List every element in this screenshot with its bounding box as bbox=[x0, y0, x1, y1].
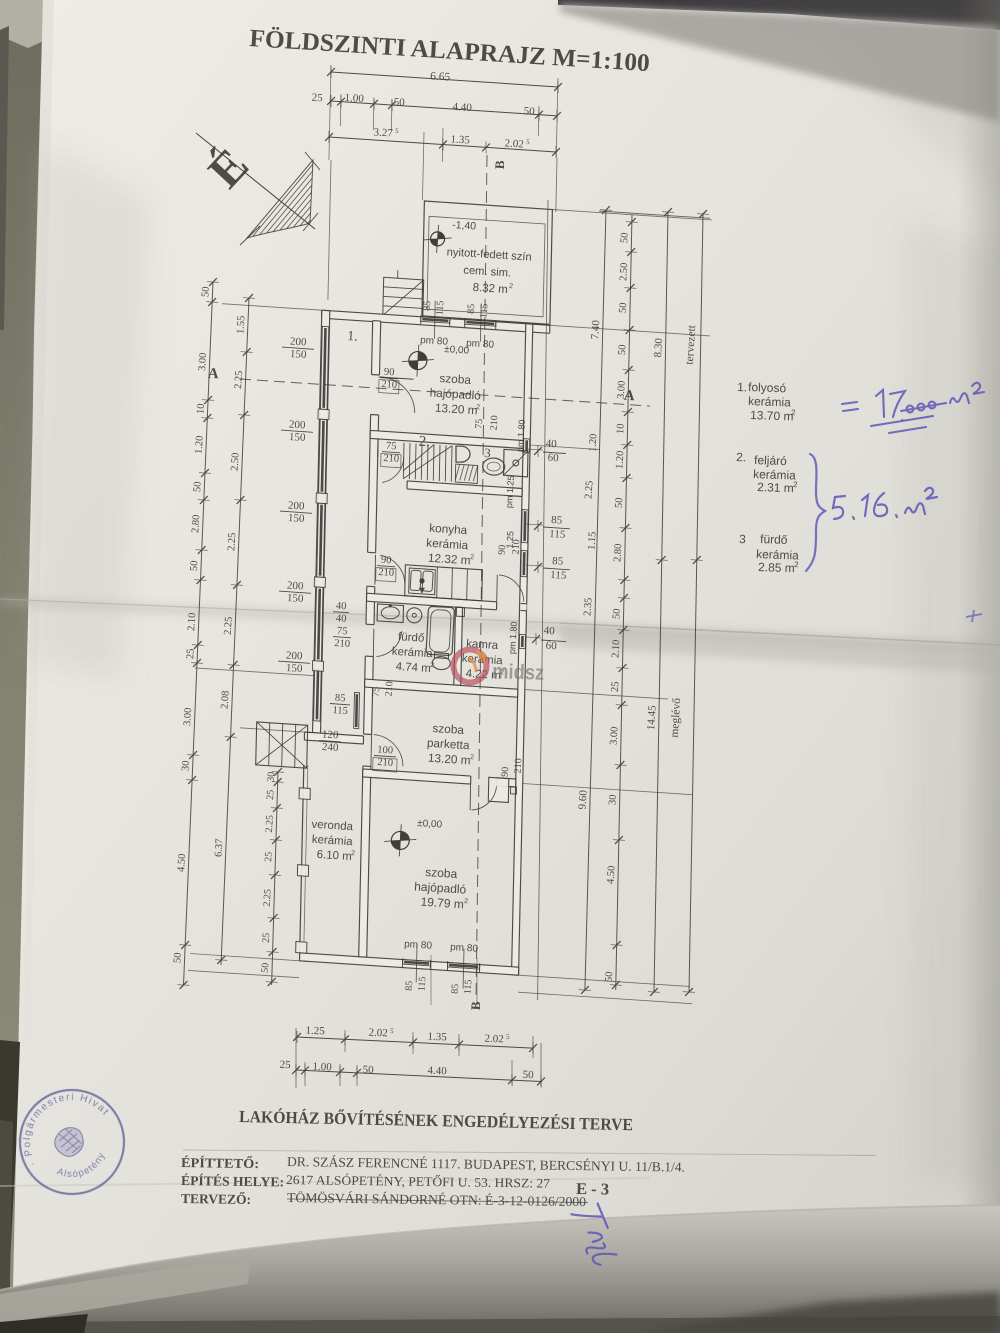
svg-text:75: 75 bbox=[474, 419, 486, 430]
svg-text:1.00: 1.00 bbox=[344, 92, 364, 105]
svg-text:90: 90 bbox=[384, 367, 395, 379]
svg-text:40: 40 bbox=[336, 601, 347, 613]
svg-text:9.60: 9.60 bbox=[577, 789, 590, 809]
svg-text:210: 210 bbox=[334, 638, 350, 650]
svg-text:konyha: konyha bbox=[429, 521, 468, 537]
svg-text:85: 85 bbox=[552, 555, 564, 568]
svg-text:85: 85 bbox=[551, 514, 563, 527]
svg-text:115: 115 bbox=[479, 303, 491, 318]
svg-text:2.25: 2.25 bbox=[264, 815, 276, 833]
svg-text:1.00: 1.00 bbox=[312, 1061, 332, 1074]
svg-text:2.: 2. bbox=[736, 450, 746, 464]
svg-text:szoba: szoba bbox=[439, 371, 472, 387]
svg-text:85: 85 bbox=[450, 984, 462, 995]
svg-text:150: 150 bbox=[286, 662, 304, 675]
svg-text:2: 2 bbox=[464, 898, 468, 905]
svg-text:200: 200 bbox=[287, 579, 305, 592]
svg-text:pm 80: pm 80 bbox=[404, 939, 433, 952]
svg-text:200: 200 bbox=[289, 418, 307, 431]
svg-text:1.: 1. bbox=[737, 380, 747, 394]
svg-text:1.55: 1.55 bbox=[235, 315, 247, 334]
svg-text:115: 115 bbox=[332, 705, 348, 717]
svg-text:6.37: 6.37 bbox=[213, 838, 225, 857]
svg-text:fürdő: fürdő bbox=[760, 532, 788, 547]
svg-text:40: 40 bbox=[336, 613, 347, 625]
svg-text:2.80: 2.80 bbox=[612, 543, 624, 562]
svg-text:6.10 m: 6.10 m bbox=[316, 849, 352, 863]
svg-text:50: 50 bbox=[393, 96, 405, 109]
svg-text:100: 100 bbox=[377, 745, 393, 757]
svg-text:±0,00: ±0,00 bbox=[444, 344, 470, 357]
svg-text:2.08: 2.08 bbox=[220, 690, 232, 709]
svg-text:85: 85 bbox=[335, 693, 346, 705]
svg-text:E - 3: E - 3 bbox=[576, 1179, 609, 1199]
svg-text:kerámia: kerámia bbox=[426, 536, 469, 553]
svg-text:210: 210 bbox=[384, 681, 396, 697]
svg-text:85: 85 bbox=[422, 301, 434, 312]
svg-text:2.25: 2.25 bbox=[233, 370, 245, 389]
svg-text:115: 115 bbox=[550, 569, 567, 582]
svg-text:2.31 m: 2.31 m bbox=[757, 480, 794, 495]
svg-text:115: 115 bbox=[417, 976, 429, 991]
svg-text:50: 50 bbox=[172, 952, 184, 963]
svg-text:200: 200 bbox=[286, 649, 304, 662]
svg-text:6.65: 6.65 bbox=[430, 70, 451, 83]
svg-text:2.02: 2.02 bbox=[504, 137, 524, 150]
svg-text:85: 85 bbox=[466, 304, 478, 315]
svg-text:3: 3 bbox=[739, 532, 746, 546]
svg-text:50: 50 bbox=[189, 560, 201, 571]
svg-text:25: 25 bbox=[263, 852, 275, 863]
svg-text:1.15: 1.15 bbox=[586, 531, 598, 550]
svg-text:1.35: 1.35 bbox=[450, 133, 470, 146]
svg-text:B: B bbox=[468, 1001, 484, 1011]
svg-text:pm 80: pm 80 bbox=[450, 942, 479, 955]
svg-text:50: 50 bbox=[260, 963, 272, 974]
svg-text:50: 50 bbox=[618, 302, 630, 313]
svg-text:50: 50 bbox=[200, 286, 212, 297]
svg-text:B: B bbox=[492, 160, 508, 170]
svg-text:1.: 1. bbox=[347, 329, 358, 345]
svg-text:25: 25 bbox=[311, 92, 323, 105]
svg-text:25: 25 bbox=[261, 933, 273, 944]
svg-text:3.00: 3.00 bbox=[609, 726, 621, 745]
svg-text:2: 2 bbox=[351, 850, 355, 857]
svg-text:30: 30 bbox=[607, 794, 619, 805]
svg-text:60: 60 bbox=[545, 640, 557, 653]
svg-text:115: 115 bbox=[549, 528, 566, 541]
svg-text:2.50: 2.50 bbox=[230, 452, 242, 471]
svg-text:TERVEZŐ:: TERVEZŐ: bbox=[181, 1191, 251, 1207]
svg-text:4.40: 4.40 bbox=[427, 1065, 447, 1078]
svg-text:folyosó: folyosó bbox=[748, 380, 787, 395]
svg-text:7.40: 7.40 bbox=[589, 319, 602, 339]
svg-text:ÉPÍTTETŐ:: ÉPÍTTETŐ: bbox=[181, 1155, 259, 1171]
svg-text:midsz: midsz bbox=[492, 660, 545, 685]
svg-text:1.20: 1.20 bbox=[194, 435, 206, 454]
svg-text:210: 210 bbox=[513, 758, 525, 774]
svg-text:1.35: 1.35 bbox=[427, 1031, 447, 1044]
svg-text:85: 85 bbox=[404, 981, 416, 992]
svg-text:25: 25 bbox=[610, 681, 622, 692]
svg-text:120: 120 bbox=[322, 728, 340, 741]
svg-text:1.25: 1.25 bbox=[504, 531, 515, 549]
svg-text:±0,00: ±0,00 bbox=[417, 818, 443, 831]
svg-text:50: 50 bbox=[192, 481, 204, 492]
svg-text:pm 1.25: pm 1.25 bbox=[504, 475, 516, 508]
svg-text:75: 75 bbox=[371, 687, 383, 698]
svg-text:3.00: 3.00 bbox=[197, 352, 209, 371]
svg-text:19.79 m: 19.79 m bbox=[420, 895, 464, 912]
svg-text:2: 2 bbox=[470, 554, 474, 561]
svg-text:30: 30 bbox=[180, 760, 192, 771]
svg-text:50: 50 bbox=[611, 608, 623, 619]
svg-text:2.10: 2.10 bbox=[186, 612, 198, 631]
svg-text:25: 25 bbox=[279, 1059, 291, 1071]
svg-text:2.: 2. bbox=[418, 434, 430, 451]
svg-text:2: 2 bbox=[509, 283, 513, 290]
svg-text:150: 150 bbox=[287, 592, 305, 605]
svg-text:8.32 m: 8.32 m bbox=[472, 282, 508, 296]
svg-text:40: 40 bbox=[543, 625, 555, 638]
svg-text:115: 115 bbox=[463, 979, 475, 994]
svg-text:50: 50 bbox=[617, 344, 629, 355]
svg-text:75: 75 bbox=[337, 626, 348, 638]
svg-text:13.20 m: 13.20 m bbox=[435, 401, 479, 418]
svg-text:4.74 m: 4.74 m bbox=[395, 661, 431, 675]
svg-text:4.50: 4.50 bbox=[606, 865, 618, 884]
svg-text:30: 30 bbox=[266, 772, 278, 783]
svg-text:2.02: 2.02 bbox=[368, 1027, 388, 1040]
svg-text:2.10: 2.10 bbox=[610, 639, 622, 658]
svg-text:tervezett: tervezett bbox=[684, 324, 699, 365]
svg-text:10: 10 bbox=[615, 423, 627, 434]
svg-text:1.20: 1.20 bbox=[614, 450, 626, 469]
svg-text:2: 2 bbox=[470, 754, 474, 761]
svg-text:8.30: 8.30 bbox=[652, 337, 665, 357]
svg-text:ÉPÍTÉS HELYE:: ÉPÍTÉS HELYE: bbox=[181, 1173, 284, 1189]
svg-text:szoba: szoba bbox=[425, 865, 458, 881]
svg-text:2.25: 2.25 bbox=[262, 889, 274, 907]
svg-text:feljáró: feljáró bbox=[754, 453, 787, 468]
svg-text:13.20 m: 13.20 m bbox=[428, 751, 472, 768]
svg-text:2.85 m: 2.85 m bbox=[758, 560, 795, 575]
svg-text:pm 80: pm 80 bbox=[466, 338, 495, 351]
svg-text:4.40: 4.40 bbox=[452, 101, 472, 114]
svg-text:13.70 m: 13.70 m bbox=[750, 408, 794, 424]
svg-text:parketta: parketta bbox=[427, 736, 471, 753]
svg-text:240: 240 bbox=[322, 741, 340, 754]
svg-text:2: 2 bbox=[476, 404, 480, 411]
svg-text:50: 50 bbox=[362, 1064, 374, 1076]
svg-text:2.25: 2.25 bbox=[226, 532, 238, 551]
svg-text:60: 60 bbox=[547, 452, 559, 465]
svg-text:meglévő: meglévő bbox=[669, 697, 683, 738]
svg-text:150: 150 bbox=[289, 431, 307, 444]
svg-text:szoba: szoba bbox=[432, 721, 465, 737]
svg-text:2.35: 2.35 bbox=[582, 597, 594, 616]
svg-text:3.00: 3.00 bbox=[616, 380, 628, 399]
svg-text:-1,40: -1,40 bbox=[452, 219, 477, 232]
svg-text:14.45: 14.45 bbox=[645, 705, 659, 731]
svg-text:50: 50 bbox=[523, 105, 535, 118]
svg-text:2.25: 2.25 bbox=[583, 480, 595, 499]
svg-text:2.50: 2.50 bbox=[618, 262, 630, 281]
svg-text:25: 25 bbox=[185, 648, 197, 659]
svg-text:2.80: 2.80 bbox=[190, 514, 202, 533]
svg-text:115: 115 bbox=[435, 300, 447, 315]
svg-text:200: 200 bbox=[288, 499, 306, 512]
svg-text:12.32 m: 12.32 m bbox=[428, 551, 472, 568]
svg-text:210: 210 bbox=[489, 415, 501, 431]
svg-text:pm 1.80: pm 1.80 bbox=[515, 419, 527, 452]
svg-text:3.00: 3.00 bbox=[182, 707, 194, 726]
svg-text:40: 40 bbox=[545, 438, 557, 451]
svg-text:10: 10 bbox=[195, 403, 207, 414]
svg-text:3.27: 3.27 bbox=[373, 126, 393, 139]
svg-text:50: 50 bbox=[619, 232, 631, 243]
svg-text:25: 25 bbox=[265, 790, 277, 801]
svg-text:150: 150 bbox=[288, 512, 306, 525]
svg-text:2.02: 2.02 bbox=[484, 1033, 504, 1046]
svg-text:150: 150 bbox=[290, 348, 308, 361]
svg-text:50: 50 bbox=[614, 497, 626, 508]
svg-text:2.25: 2.25 bbox=[223, 616, 235, 635]
svg-text:90: 90 bbox=[500, 767, 512, 778]
svg-text:50: 50 bbox=[522, 1069, 534, 1081]
svg-text:pm 1.80: pm 1.80 bbox=[507, 621, 519, 654]
svg-text:4.50: 4.50 bbox=[176, 853, 188, 872]
svg-text:1.25: 1.25 bbox=[305, 1025, 325, 1038]
svg-text:200: 200 bbox=[290, 335, 308, 348]
svg-text:75: 75 bbox=[386, 441, 397, 453]
